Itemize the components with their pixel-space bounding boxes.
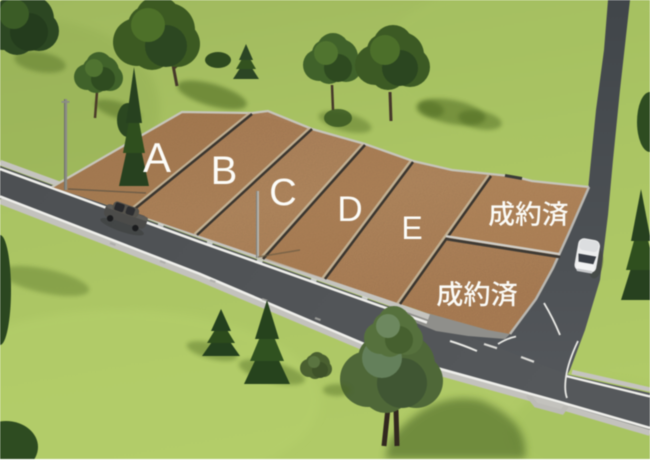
svg-text:E: E bbox=[401, 210, 422, 246]
svg-text:D: D bbox=[337, 190, 362, 229]
svg-text:B: B bbox=[211, 149, 238, 193]
svg-text:C: C bbox=[269, 172, 296, 214]
svg-text:A: A bbox=[143, 134, 171, 181]
